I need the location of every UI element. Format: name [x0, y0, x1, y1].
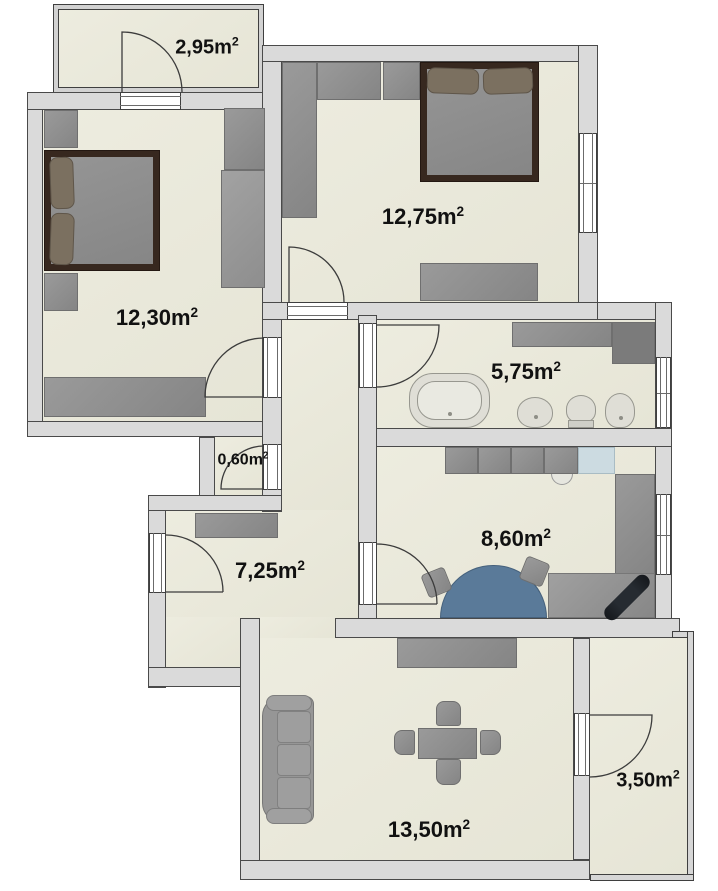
window-mullion: [580, 183, 596, 184]
door-entrance: [149, 533, 166, 593]
sofa-cushion: [277, 711, 311, 743]
wall-bath-kitchen-divider: [358, 428, 672, 447]
window-mullion: [657, 393, 670, 394]
wall-bedroom-right-top: [262, 45, 598, 62]
bedroom-left-area-label: 12,30m2: [116, 305, 198, 331]
pillow-icon: [49, 157, 75, 210]
wall-living-left: [240, 618, 260, 880]
bathroom-area-label: 5,75m2: [491, 359, 561, 385]
sofa-arm: [266, 695, 312, 711]
hallway-area-label: 7,25m2: [235, 558, 305, 584]
door-kitchen: [359, 542, 377, 605]
wardrobe-icon: [383, 62, 420, 100]
balcony-bottom-area-label: 3,50m2: [616, 768, 680, 793]
hallway-floor-lower: [166, 617, 242, 668]
balcony-bottom-rail-bottom: [590, 874, 694, 881]
sink-drain: [534, 415, 538, 419]
wardrobe-icon: [224, 108, 265, 170]
floor-plan: 2,95m2 12,30m2 12,75m2 5,75m2 0,60m2 7,2…: [0, 0, 718, 891]
wall-exterior-left: [27, 92, 43, 437]
bathroom-corner-unit: [612, 322, 655, 364]
wardrobe-icon: [282, 62, 317, 218]
bathroom-counter: [512, 322, 612, 347]
kitchen-cabinet: [445, 447, 478, 474]
balcony-top-area-label: 2,95m2: [175, 35, 239, 60]
wall-hall-top: [148, 495, 282, 511]
window-bathroom: [656, 357, 671, 428]
kitchen-side-counter: [615, 474, 655, 574]
balcony-bottom-floor: [590, 637, 689, 875]
wardrobe-icon: [44, 377, 206, 417]
wall-living-bottom: [240, 860, 590, 880]
door-bedroom-left: [263, 337, 282, 398]
dining-chair-icon: [394, 730, 415, 755]
bidet-icon: [605, 393, 635, 428]
sink-icon: [517, 397, 553, 428]
bathtub-drain: [448, 412, 452, 416]
dining-chair-icon: [436, 759, 461, 785]
kitchen-cabinet: [478, 447, 511, 474]
toilet-base: [568, 420, 594, 428]
dining-chair-icon: [436, 701, 461, 726]
pillow-icon: [427, 67, 480, 95]
dining-chair-icon: [480, 730, 501, 755]
balcony-bottom-rail-right: [687, 631, 694, 881]
pillow-icon: [483, 67, 534, 95]
nightstand-icon: [44, 273, 78, 311]
hall-living-opening: [260, 617, 336, 639]
door-bedroom-right: [287, 302, 348, 320]
bidet-drain: [619, 416, 623, 420]
sofa-icon: [262, 696, 314, 823]
dining-table-icon: [418, 728, 477, 759]
wall-exterior-right: [655, 302, 672, 638]
wall-kitchen-bottom: [335, 618, 680, 638]
nightstand-icon: [44, 110, 78, 148]
wardrobe-icon: [221, 170, 265, 288]
wall-mid-vertical: [262, 45, 282, 512]
door-balcony-top: [120, 92, 181, 110]
wardrobe-icon: [317, 62, 381, 100]
kitchen-area-label: 8,60m2: [481, 526, 551, 552]
bedroom-right-area-label: 12,75m2: [382, 204, 464, 230]
sofa-cushion: [277, 744, 311, 776]
stove-icon: [578, 447, 615, 474]
closet-area-label: 0,60m2: [218, 450, 269, 469]
door-balcony-bottom: [574, 713, 590, 776]
window-mullion: [657, 535, 670, 536]
pillow-icon: [49, 213, 75, 266]
wall-bedroom-left-bottom: [27, 421, 282, 437]
living-room-area-label: 13,50m2: [388, 817, 470, 843]
sofa-arm: [266, 808, 312, 824]
corridor-floor: [282, 315, 358, 511]
hall-wardrobe-icon: [195, 513, 278, 538]
sideboard-icon: [397, 638, 517, 668]
sofa-cushion: [277, 777, 311, 809]
dresser-icon: [420, 263, 538, 301]
bathtub-icon: [409, 373, 490, 428]
kitchen-cabinet: [511, 447, 544, 474]
door-bathroom: [359, 323, 377, 388]
window-bedroom-right: [579, 133, 597, 233]
window-kitchen: [656, 494, 671, 575]
kitchen-sink-cabinet: [544, 447, 578, 474]
toilet-icon: [566, 395, 596, 423]
